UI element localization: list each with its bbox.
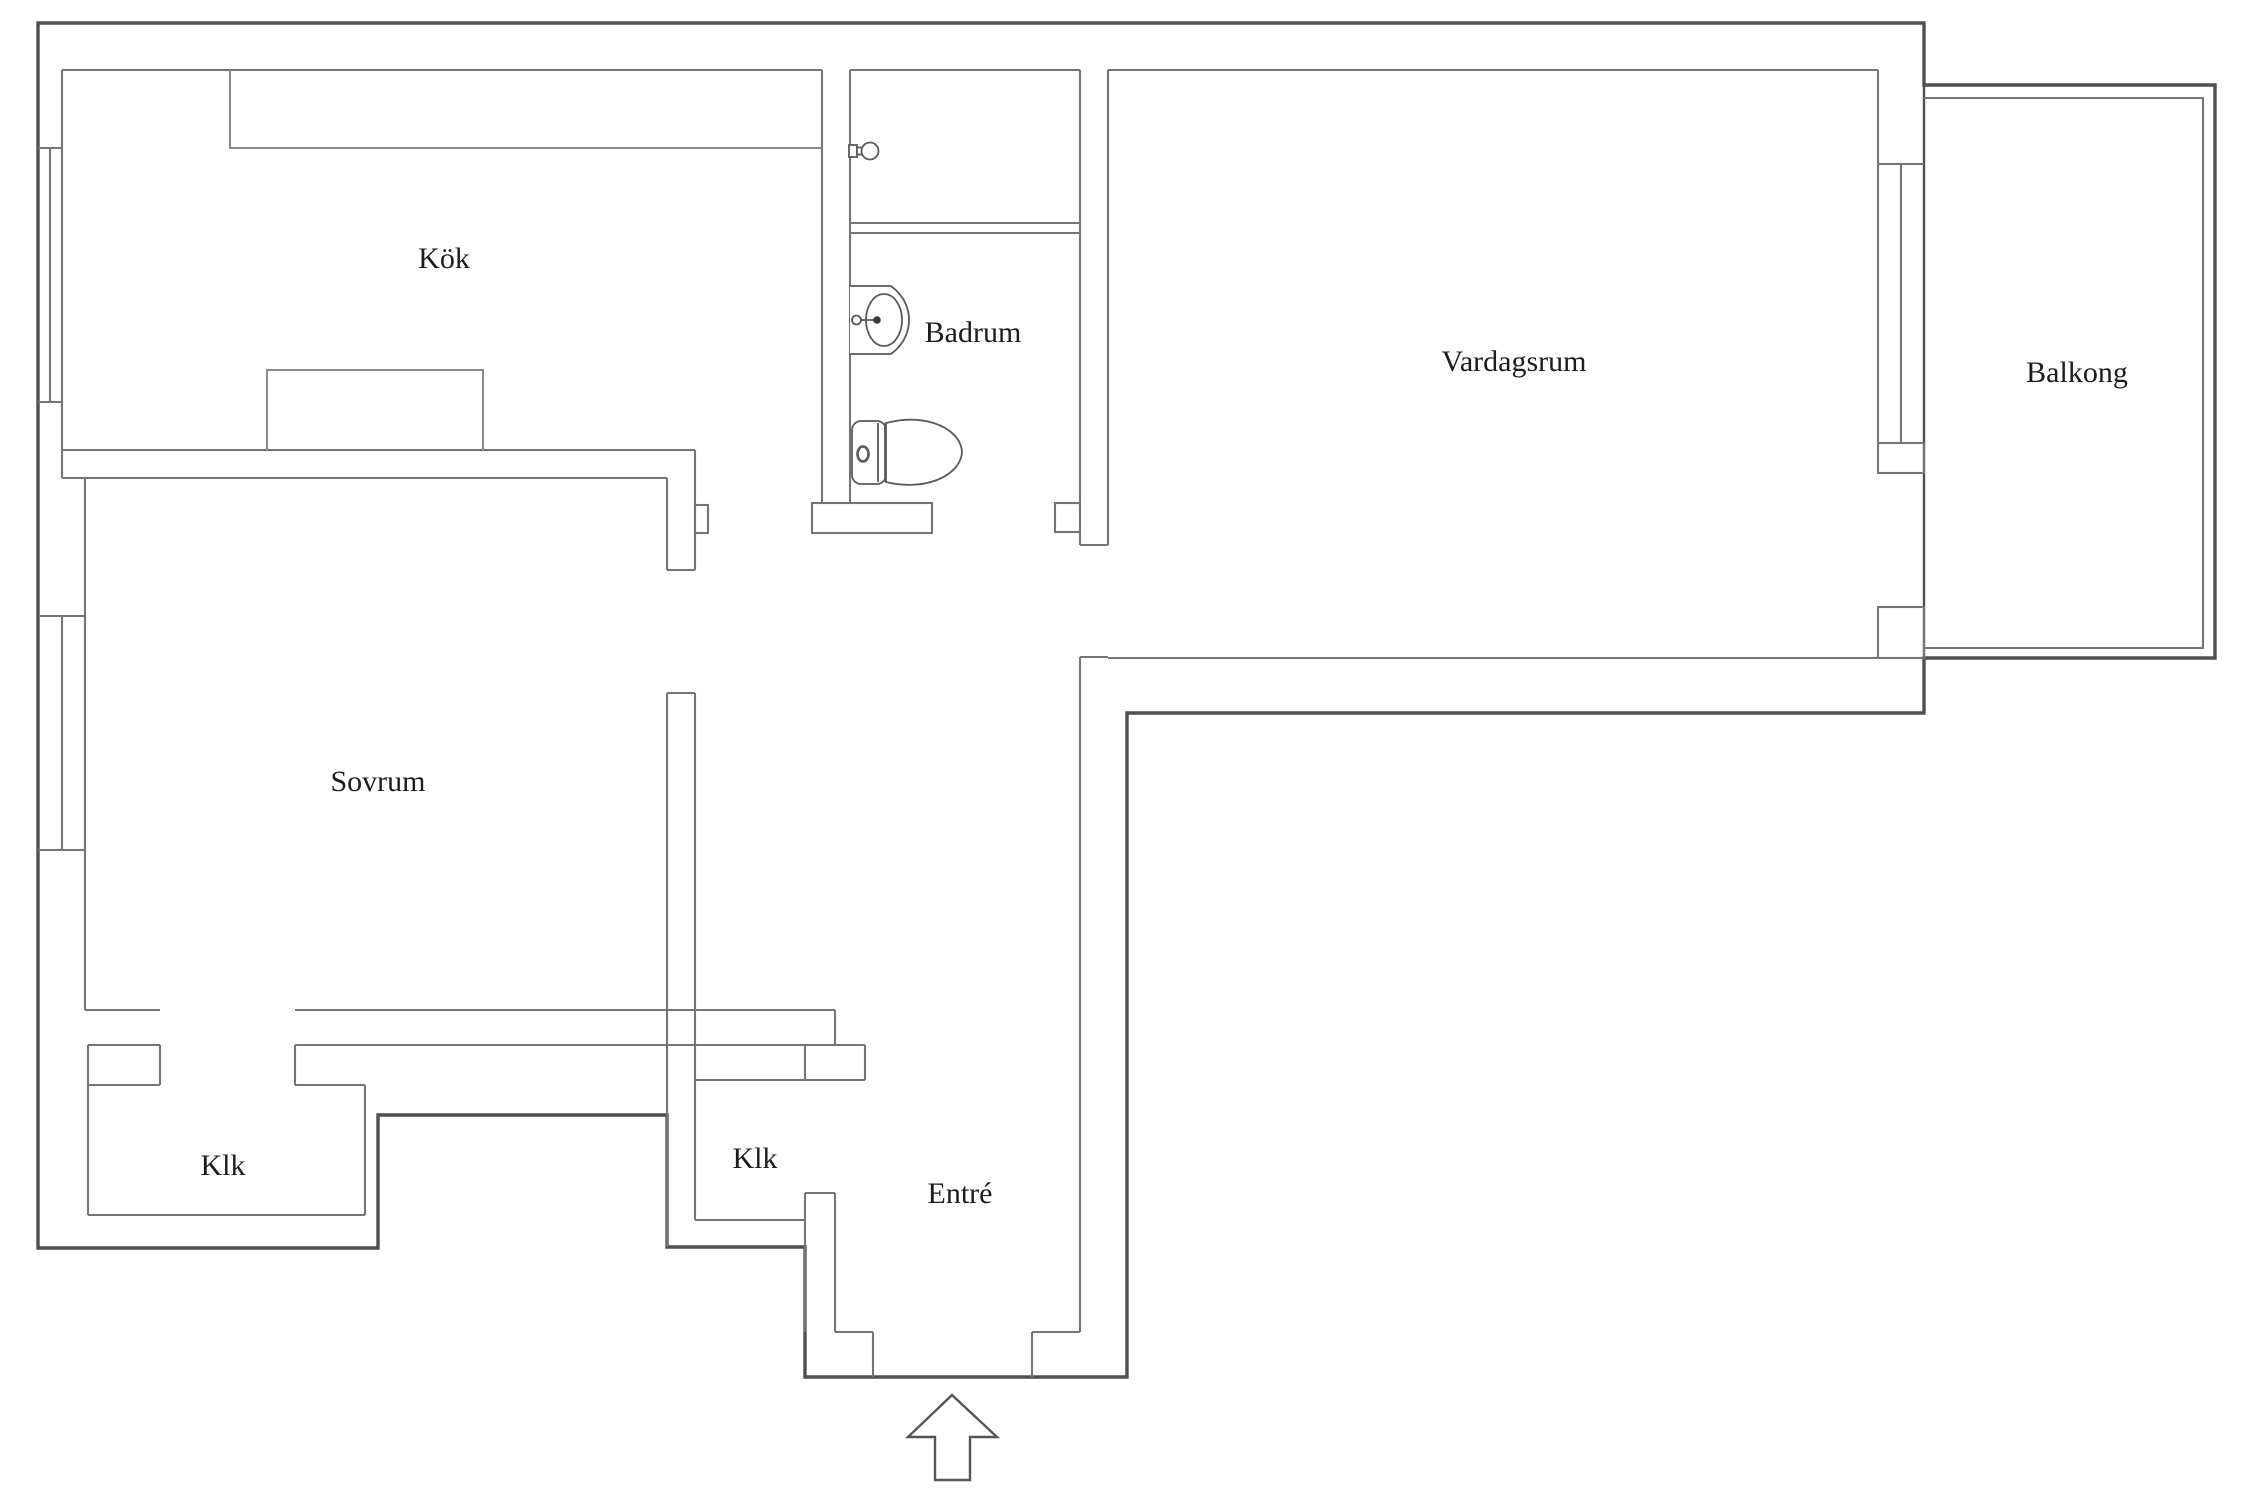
room-label-klk-left: Klk (201, 1149, 246, 1182)
room-label-kok: Kök (418, 242, 470, 275)
window-sovrum (38, 616, 85, 850)
room-label-badrum: Badrum (925, 316, 1022, 349)
inner-walls (62, 70, 2203, 1377)
room-label-balkong: Balkong (2026, 356, 2128, 389)
entrance-arrow-icon (908, 1395, 997, 1480)
window-kok (38, 148, 62, 402)
room-label-sovrum: Sovrum (330, 765, 425, 798)
window-vardagsrum (1878, 164, 1924, 443)
sink-icon (850, 286, 909, 354)
shower-icon (849, 143, 879, 160)
toilet-icon (852, 420, 962, 485)
room-label-klk-middle: Klk (733, 1142, 778, 1175)
kitchen-appliance (267, 370, 483, 450)
room-labels: Kök Badrum Vardagsrum Balkong Sovrum Klk… (201, 242, 2128, 1210)
room-label-entre: Entré (928, 1177, 993, 1210)
room-label-vardagsrum: Vardagsrum (1442, 345, 1587, 378)
floor-plan-canvas: Kök Badrum Vardagsrum Balkong Sovrum Klk… (0, 0, 2250, 1500)
floor-plan-page: Kök Badrum Vardagsrum Balkong Sovrum Klk… (0, 0, 2250, 1500)
kitchen-counter (230, 70, 822, 148)
